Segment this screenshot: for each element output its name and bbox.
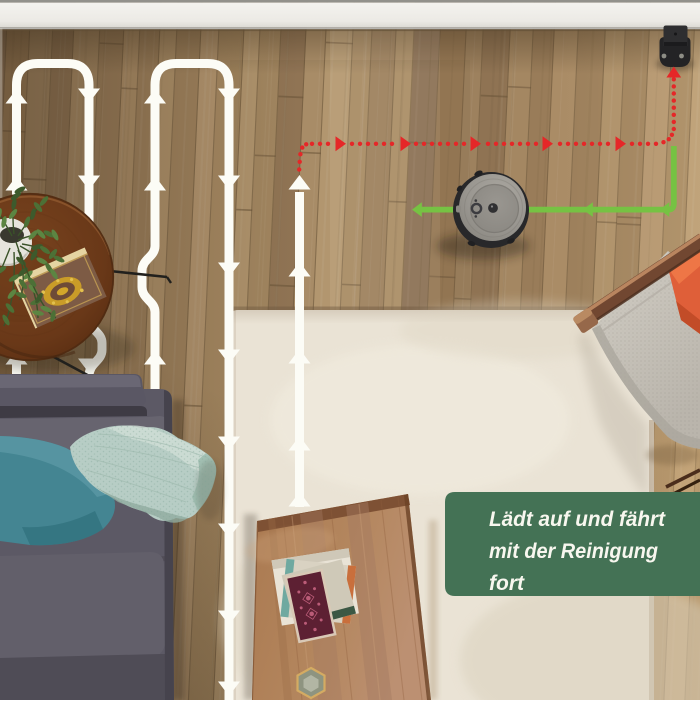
- svg-text:mit der Reinigung: mit der Reinigung: [489, 540, 658, 563]
- svg-text:fort: fort: [489, 572, 525, 595]
- svg-text:Lädt auf und fährt: Lädt auf und fährt: [489, 508, 666, 531]
